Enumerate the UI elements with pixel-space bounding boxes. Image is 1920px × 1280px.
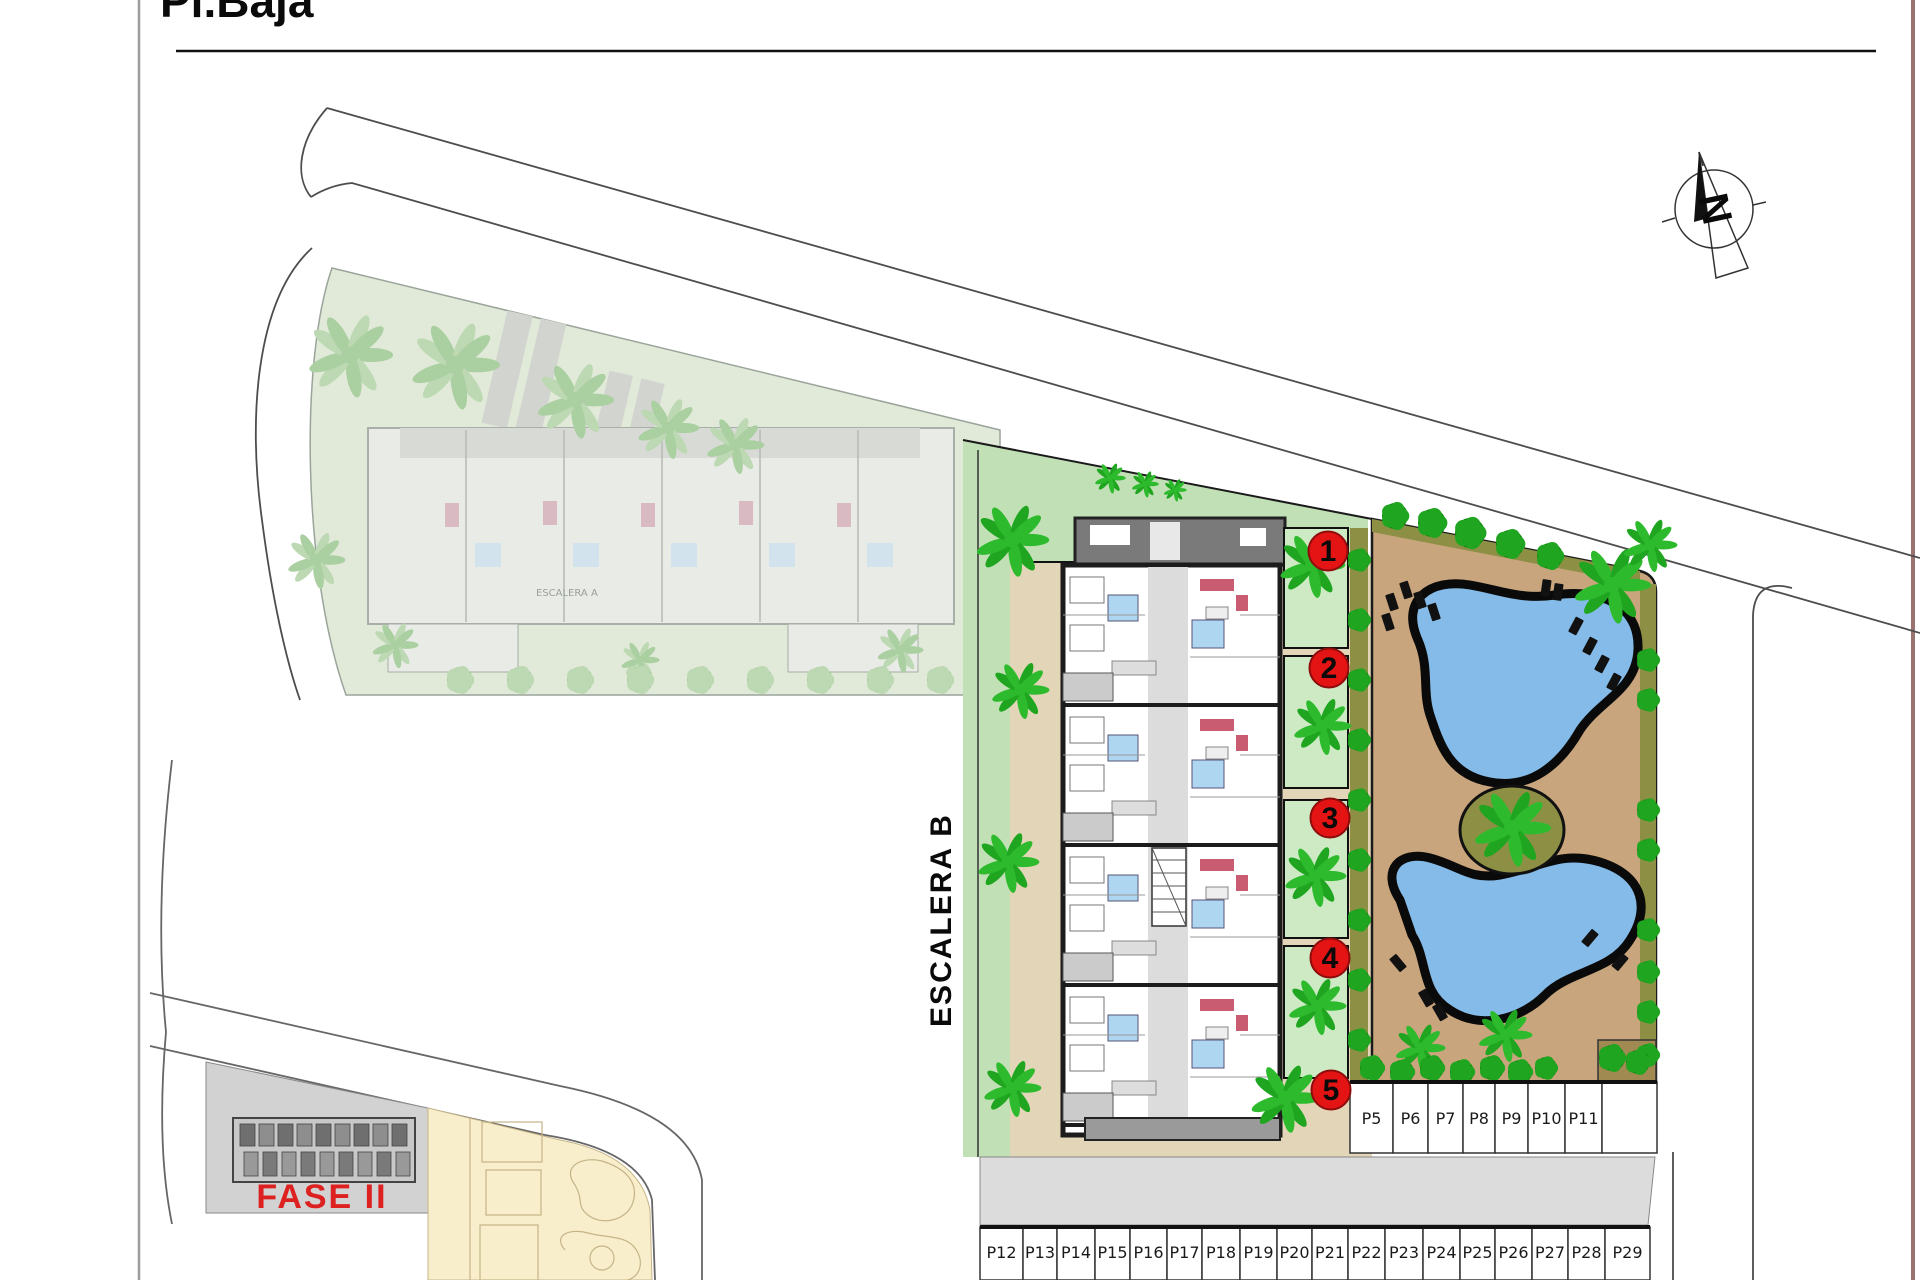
parking-stall-label: P22 [1351,1243,1381,1262]
parking-stall: P28 [1568,1227,1605,1280]
parking-stall: P6 [1393,1082,1428,1153]
parking-stall: P23 [1385,1227,1423,1280]
parking-stall: P17 [1167,1227,1202,1280]
unit-marker-5: 5 [1312,1071,1351,1110]
parking-stall: P15 [1095,1227,1130,1280]
faded-phase-block: ESCALERA A [287,268,1000,695]
parking-stall: P7 [1428,1082,1463,1153]
parking-stall-label: P28 [1571,1243,1601,1262]
parking-stall-label: P26 [1498,1243,1528,1262]
fase2-inset: FASE II [206,1062,652,1280]
parking-stall: P27 [1532,1227,1568,1280]
parking-stall-label: P9 [1502,1109,1522,1128]
parking-stall: P8 [1463,1082,1495,1153]
parking-stall: P13 [1023,1227,1057,1280]
site-plan-page: Pl.Baja [0,0,1920,1280]
parking-stall: P29 [1605,1227,1650,1280]
fase2-label: FASE II [256,1178,387,1216]
parking-stall-label: P29 [1612,1243,1642,1262]
unit-marker-3: 3 [1311,799,1350,838]
parking-stall-label: P7 [1436,1109,1456,1128]
unit-marker-number: 3 [1322,802,1339,835]
parking-stall-label: P24 [1426,1243,1456,1262]
parking-stall-label: P5 [1362,1109,1382,1128]
parking-stall-label: P16 [1133,1243,1163,1262]
parking-stall: P22 [1348,1227,1385,1280]
parking-stall-label: P10 [1531,1109,1561,1128]
parking-row-upper: P5P6P7P8P9P10P11 [1350,1082,1657,1153]
parking-stall [1602,1082,1657,1153]
parking-stall: P20 [1277,1227,1312,1280]
lower-terrace-band [1085,1118,1280,1140]
parking-stall: P18 [1202,1227,1240,1280]
site-plan-drawing: Pl.Baja [0,0,1920,1280]
parking-stall-label: P25 [1462,1243,1492,1262]
parking-stall-label: P6 [1401,1109,1421,1128]
parking-stall: P24 [1423,1227,1460,1280]
palm-tree-icon [1623,518,1678,573]
access-road [980,1157,1655,1225]
parking-stall-label: P11 [1568,1109,1598,1128]
north-compass: N [1662,152,1766,278]
parking-stall: P10 [1528,1082,1565,1153]
escalera-b-label: ESCALERA B [925,813,958,1027]
parking-stall-label: P15 [1097,1243,1127,1262]
unit-marker-4: 4 [1311,939,1350,978]
unit-marker-number: 4 [1322,942,1339,975]
unit-marker-number: 2 [1321,652,1338,685]
parking-stall-label: P14 [1061,1243,1091,1262]
parking-stall-label: P19 [1243,1243,1273,1262]
unit-marker-2: 2 [1310,649,1349,688]
parking-stall-label: P27 [1535,1243,1565,1262]
unit-marker-number: 1 [1320,535,1337,568]
parking-stall-label: P18 [1206,1243,1236,1262]
parking-stall-label: P20 [1279,1243,1309,1262]
parking-stall: P5 [1350,1082,1393,1153]
parking-stall: P16 [1130,1227,1167,1280]
parking-stall: P14 [1057,1227,1095,1280]
parking-stall: P9 [1495,1082,1528,1153]
parking-stall: P12 [980,1227,1023,1280]
parking-stall-label: P17 [1169,1243,1199,1262]
parking-stall: P25 [1460,1227,1495,1280]
unit-marker-number: 5 [1323,1074,1340,1107]
parking-row-lower: P12P13P14P15P16P17P18P19P20P21P22P23P24P… [980,1227,1650,1280]
parking-stall: P26 [1495,1227,1532,1280]
parking-stall: P19 [1240,1227,1277,1280]
unit-marker-1: 1 [1309,532,1348,571]
active-site: ESCALERA B P5P6P7P8P9P10P11 P12P13P14P15… [925,440,1677,1280]
parking-stall-label: P13 [1025,1243,1055,1262]
parking-stall-label: P21 [1315,1243,1345,1262]
escalera-a-label: ESCALERA A [536,588,598,599]
page-title: Pl.Baja [160,0,314,27]
parking-stall: P11 [1565,1082,1602,1153]
parking-stall-label: P23 [1389,1243,1419,1262]
parking-stall: P21 [1312,1227,1348,1280]
parking-stall-label: P8 [1469,1109,1489,1128]
parking-stall-label: P12 [986,1243,1016,1262]
